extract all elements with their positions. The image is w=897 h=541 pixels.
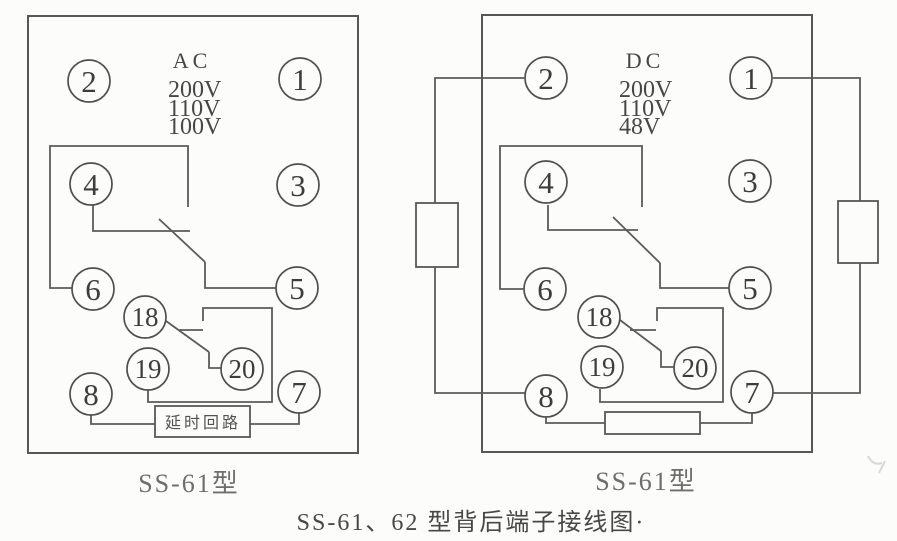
terminal-7-label: 7 <box>291 375 307 410</box>
terminal-3: 3 <box>277 164 319 206</box>
wire-8-to-resistor <box>546 417 605 423</box>
terminal-3-label: 3 <box>742 164 758 199</box>
terminal-20: 20 <box>674 347 716 389</box>
terminal-7: 7 <box>278 371 320 413</box>
terminal-4-label: 4 <box>538 165 554 200</box>
wire-left-resistor-to-8 <box>435 267 525 393</box>
terminal-20-label: 20 <box>682 353 709 383</box>
terminal-6: 6 <box>524 268 566 310</box>
wire-to-5 <box>660 263 729 288</box>
terminal-8: 8 <box>525 375 567 417</box>
terminal-2: 2 <box>68 60 110 102</box>
terminal-19-label: 19 <box>135 354 162 384</box>
terminal-3-label: 3 <box>290 168 306 203</box>
terminal-4-label: 4 <box>83 167 99 202</box>
terminal-8-label: 8 <box>83 377 99 412</box>
terminal-18: 18 <box>124 296 166 338</box>
terminal-5-label: 5 <box>289 271 305 306</box>
terminal-2-label: 2 <box>538 61 554 96</box>
supply-type-ac: AC <box>173 48 212 73</box>
terminal-6-label: 6 <box>537 272 553 307</box>
terminal-19: 19 <box>581 346 623 388</box>
figure: 延时回路 AC 200V 110V 100V 2 1 4 3 6 5 <box>0 0 897 541</box>
terminal-1: 1 <box>279 58 321 100</box>
switch-blade <box>613 217 660 263</box>
terminal-4: 4 <box>70 163 112 205</box>
supply-type-dc: DC <box>626 48 665 73</box>
terminal-2-label: 2 <box>81 64 97 99</box>
terminal-8-label: 8 <box>538 379 554 414</box>
figure-caption: SS-61、62 型背后端子接线图· <box>297 509 646 536</box>
terminal-18: 18 <box>578 296 620 338</box>
terminal-6: 6 <box>72 268 114 310</box>
voltage-dc-3: 48V <box>619 114 661 140</box>
wire-1-to-right-resistor <box>773 78 860 201</box>
terminal-1: 1 <box>730 57 772 99</box>
external-resistor-left <box>416 203 458 267</box>
wire-from-4 <box>548 205 638 230</box>
switch-blade <box>159 219 205 262</box>
terminal-18-label: 18 <box>586 302 613 332</box>
diagram-dc-title: SS-61型 <box>595 467 697 496</box>
wire-blade-to-20 <box>661 351 674 367</box>
contact-blade-18 <box>620 320 661 351</box>
wire-right-resistor-to-7 <box>772 263 860 393</box>
external-resistor-right <box>838 201 878 263</box>
scan-artifact <box>868 456 885 473</box>
terminal-6-label: 6 <box>85 272 101 307</box>
terminal-1-label: 1 <box>292 62 308 97</box>
wiring-diagram-svg: 延时回路 AC 200V 110V 100V 2 1 4 3 6 5 <box>0 0 897 541</box>
voltage-ac-3: 100V <box>168 114 222 140</box>
terminal-2: 2 <box>525 57 567 99</box>
wire-delaybox-to-7 <box>250 412 299 424</box>
diagram-dc: DC 200V 110V 48V 2 1 4 3 6 5 <box>416 15 878 496</box>
terminal-18-label: 18 <box>132 302 159 332</box>
wire-2-to-left-resistor <box>435 78 524 203</box>
terminal-19: 19 <box>127 348 169 390</box>
terminal-5-label: 5 <box>742 271 758 306</box>
wire-8-to-delaybox <box>91 415 155 424</box>
delay-circuit-label: 延时回路 <box>165 414 241 432</box>
terminal-5: 5 <box>276 267 318 309</box>
terminal-1-label: 1 <box>743 61 759 96</box>
wire-contact-to-6 <box>500 146 642 289</box>
terminal-20-label: 20 <box>229 354 256 384</box>
wire-contact-to-6 <box>50 146 188 288</box>
terminal-4: 4 <box>525 161 567 203</box>
terminal-3: 3 <box>729 160 771 202</box>
terminal-8: 8 <box>70 373 112 415</box>
wire-blade-to-20 <box>209 352 221 368</box>
terminal-5: 5 <box>729 267 771 309</box>
diagram-ac-title: SS-61型 <box>138 469 240 498</box>
wire-resistor-to-7 <box>700 412 752 423</box>
terminal-20: 20 <box>221 348 263 390</box>
contact-blade-18 <box>166 321 209 352</box>
diagram-ac: 延时回路 AC 200V 110V 100V 2 1 4 3 6 5 <box>28 16 358 498</box>
wire-to-5 <box>205 262 276 288</box>
terminal-19-label: 19 <box>589 352 616 382</box>
terminal-7: 7 <box>731 371 773 413</box>
terminal-7-label: 7 <box>744 375 760 410</box>
wire-from-4 <box>93 205 190 231</box>
series-resistor-box <box>605 412 700 434</box>
